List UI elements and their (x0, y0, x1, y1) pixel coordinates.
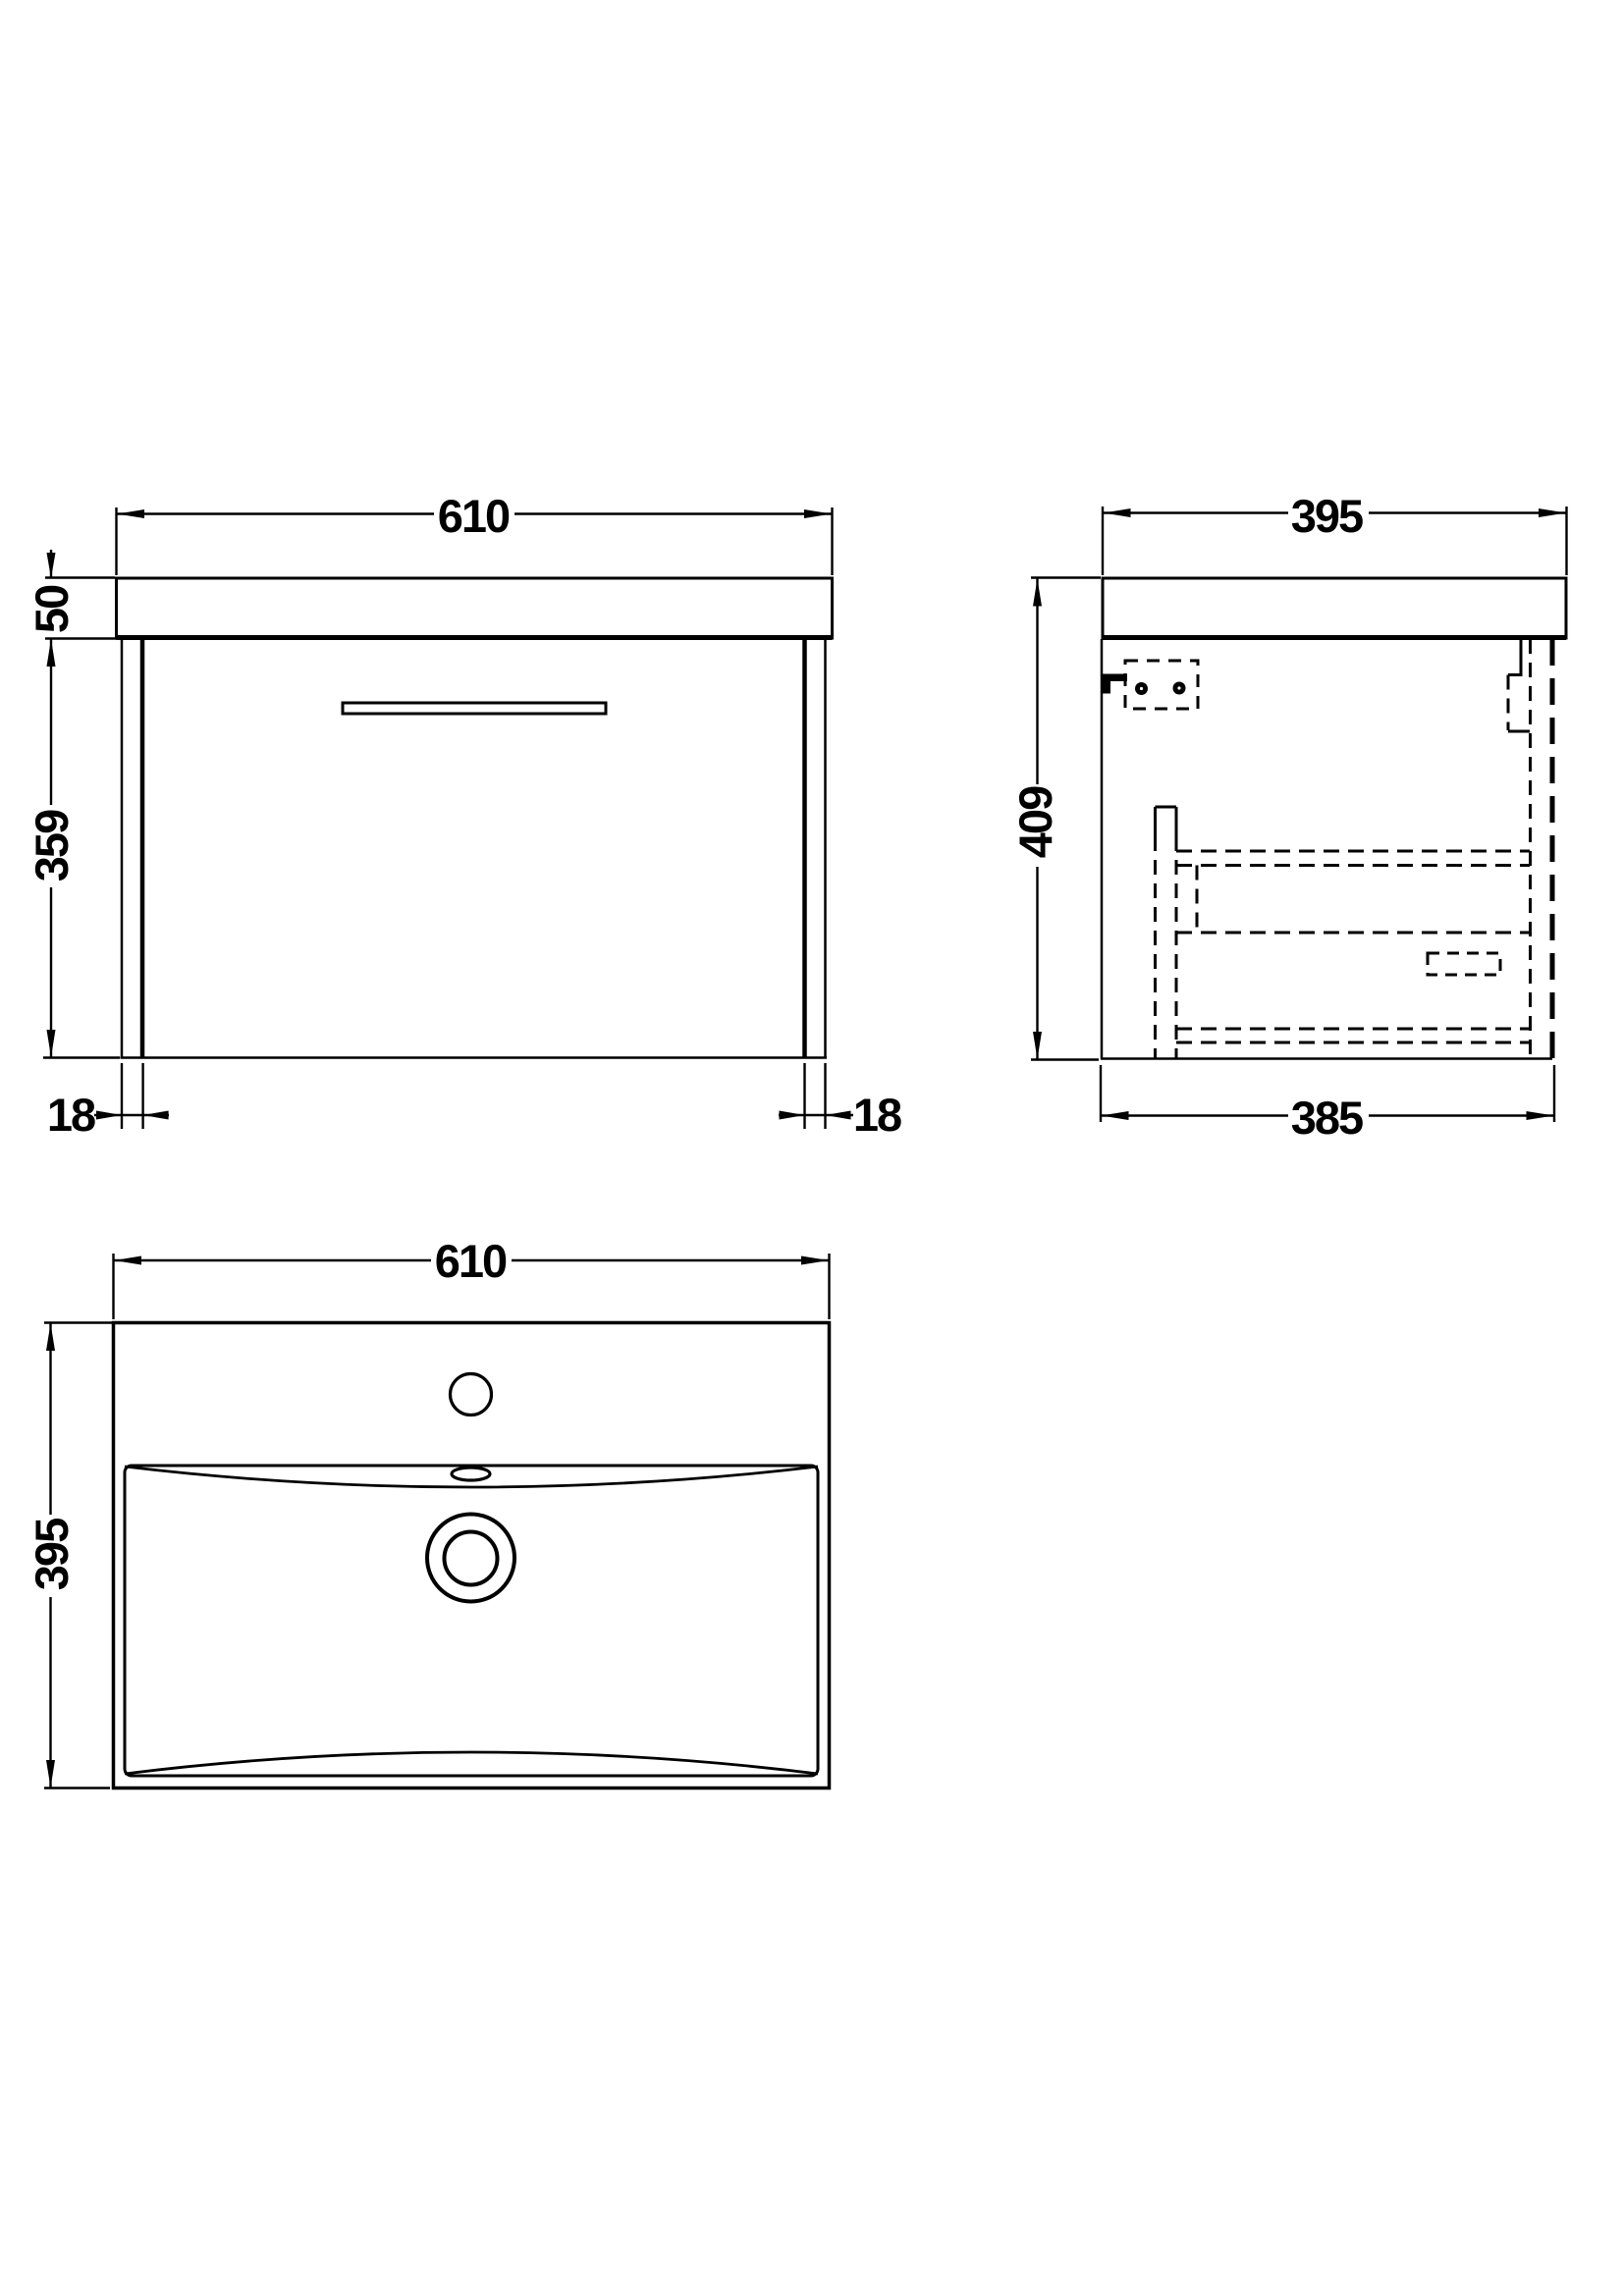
svg-text:409: 409 (1009, 786, 1061, 858)
svg-text:359: 359 (26, 810, 78, 881)
svg-text:395: 395 (1291, 490, 1363, 542)
svg-text:18: 18 (853, 1089, 901, 1141)
svg-text:18: 18 (47, 1089, 95, 1141)
svg-text:610: 610 (435, 1235, 507, 1287)
svg-text:50: 50 (26, 585, 78, 633)
svg-text:610: 610 (438, 490, 510, 542)
svg-text:385: 385 (1291, 1092, 1363, 1144)
svg-text:395: 395 (26, 1519, 78, 1590)
